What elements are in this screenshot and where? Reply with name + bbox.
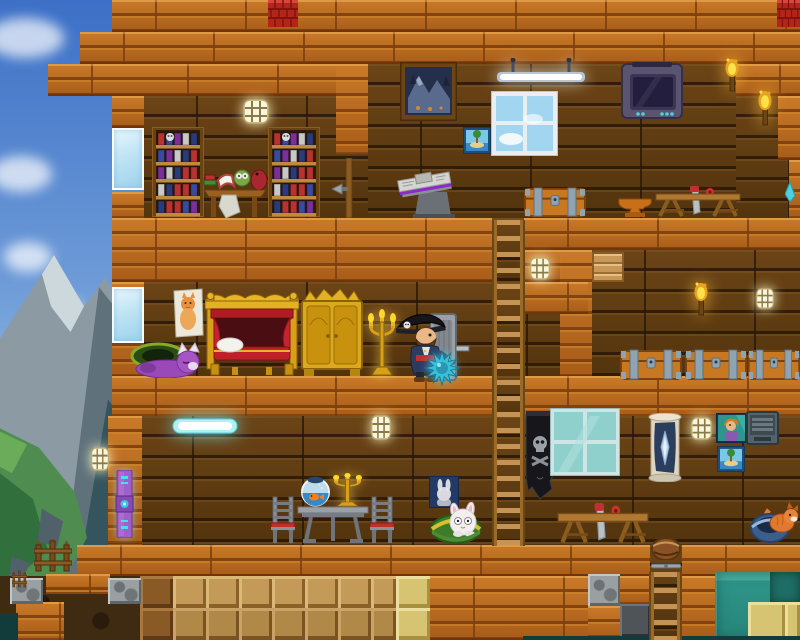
character-portrait[interactable] — [716, 413, 747, 443]
anvil[interactable] — [615, 195, 655, 218]
candelabra[interactable] — [331, 472, 364, 507]
cabin-wood-block[interactable] — [524, 282, 588, 314]
royal-bed[interactable] — [205, 291, 299, 376]
crystal-shard[interactable] — [785, 182, 795, 202]
deep-water-block[interactable] — [770, 572, 800, 603]
torch[interactable] — [691, 282, 711, 316]
chest[interactable] — [620, 348, 682, 380]
cloud — [0, 156, 52, 192]
library-desk[interactable] — [202, 164, 268, 220]
cabin-wood-block[interactable] — [16, 602, 64, 640]
metal-latch[interactable] — [651, 562, 681, 570]
sand-block[interactable] — [239, 608, 272, 640]
ladder[interactable] — [492, 220, 525, 546]
dark-stone-block[interactable] — [620, 604, 650, 637]
bunny-pet-basket[interactable] — [430, 502, 492, 544]
red-shingle-roof[interactable] — [268, 0, 298, 27]
cloud — [4, 242, 52, 272]
lattice-lamp[interactable] — [91, 447, 109, 471]
arrow-spike-icon[interactable] — [332, 183, 348, 195]
sand-block[interactable] — [239, 576, 272, 608]
island-painting[interactable] — [463, 127, 491, 154]
cabin-wood-block[interactable] — [778, 96, 800, 160]
bookshelf[interactable] — [152, 127, 204, 217]
glass-window-block[interactable] — [112, 287, 144, 343]
bookshelf[interactable] — [268, 127, 320, 217]
lattice-lamp[interactable] — [691, 417, 712, 440]
lattice-lamp[interactable] — [371, 415, 391, 440]
torch[interactable] — [722, 58, 742, 92]
fishbowl[interactable] — [300, 475, 331, 507]
dining-table[interactable] — [296, 505, 370, 543]
sand-block[interactable] — [371, 576, 396, 608]
golden-wardrobe[interactable] — [300, 289, 364, 376]
sandstone-block[interactable] — [396, 608, 430, 640]
purple-cat-pet[interactable] — [128, 342, 204, 378]
sand-block[interactable] — [206, 576, 239, 608]
lattice-lamp[interactable] — [756, 288, 774, 309]
stone-block[interactable] — [588, 574, 620, 606]
dirt-block[interactable] — [140, 576, 173, 608]
sand-block[interactable] — [338, 576, 371, 608]
newspaper-stand[interactable] — [393, 170, 461, 218]
barrel[interactable] — [651, 536, 681, 560]
dirt-block[interactable] — [140, 608, 173, 640]
cabin-wood-block[interactable] — [112, 96, 144, 128]
cabin-wood-block[interactable] — [112, 192, 144, 218]
chest[interactable] — [748, 348, 800, 380]
sandstone-block[interactable] — [396, 576, 430, 608]
chest[interactable] — [524, 186, 586, 217]
cabin-wood-block[interactable] — [524, 218, 800, 250]
red-shingle-roof[interactable] — [777, 0, 800, 27]
lattice-lamp[interactable] — [243, 99, 269, 124]
sandstone-block[interactable] — [785, 602, 800, 640]
sand-block[interactable] — [371, 608, 396, 640]
television[interactable] — [620, 60, 684, 122]
dining-chair[interactable] — [267, 495, 299, 543]
sand-block[interactable] — [173, 576, 206, 608]
sand-block[interactable] — [173, 608, 206, 640]
cabin-wood-block[interactable] — [112, 218, 492, 282]
wood-platform-block[interactable] — [592, 252, 624, 282]
spiked-mace[interactable] — [424, 350, 460, 386]
metal-locker[interactable] — [746, 410, 779, 445]
neon-light[interactable] — [172, 416, 238, 436]
ladder[interactable] — [649, 572, 682, 640]
sandstone-block[interactable] — [748, 602, 785, 640]
dark-strip[interactable] — [0, 613, 18, 640]
cabin-wood-block[interactable] — [80, 32, 800, 64]
fluorescent-light[interactable] — [497, 58, 585, 86]
wooden-fence[interactable] — [34, 539, 72, 573]
cave-scroll-poster[interactable] — [647, 413, 683, 482]
glass-window-block[interactable] — [112, 128, 144, 190]
kitten-poster[interactable] — [173, 288, 204, 338]
cabin-wood-block[interactable] — [112, 0, 800, 32]
cabin-wood-block[interactable] — [46, 574, 110, 594]
cabin-wood-block[interactable] — [48, 64, 144, 96]
cabin-wood-block[interactable] — [336, 64, 368, 154]
sand-block[interactable] — [272, 576, 305, 608]
sawhorse-workbench[interactable] — [556, 503, 650, 545]
cloud — [0, 18, 64, 58]
sand-block[interactable] — [272, 608, 305, 640]
wooden-fence[interactable] — [12, 570, 27, 588]
cabin-wood-block[interactable] — [430, 576, 590, 640]
tech-panel[interactable] — [115, 470, 134, 538]
sawhorse-workbench[interactable] — [654, 186, 742, 218]
stone-block[interactable] — [108, 578, 141, 604]
sand-block[interactable] — [305, 576, 338, 608]
cabin-wood-block[interactable] — [620, 576, 650, 604]
cabin-wood-block[interactable] — [77, 545, 650, 576]
torch[interactable] — [755, 90, 775, 126]
sand-block[interactable] — [206, 608, 239, 640]
teal-window[interactable] — [550, 408, 620, 476]
lattice-lamp[interactable] — [530, 257, 550, 280]
cabin-wood-block[interactable] — [682, 576, 715, 640]
sand-block[interactable] — [338, 608, 371, 640]
island-painting[interactable] — [717, 446, 745, 472]
fox-pet-basket[interactable] — [750, 502, 800, 544]
sky-window[interactable] — [491, 91, 558, 156]
chest[interactable] — [685, 348, 747, 380]
dining-chair[interactable] — [366, 495, 398, 543]
cabin-wood-block[interactable] — [144, 64, 368, 96]
game-scene — [0, 0, 800, 640]
sand-block[interactable] — [305, 608, 338, 640]
cabin-wood-block[interactable] — [588, 606, 620, 640]
mountain-painting[interactable] — [400, 62, 457, 121]
